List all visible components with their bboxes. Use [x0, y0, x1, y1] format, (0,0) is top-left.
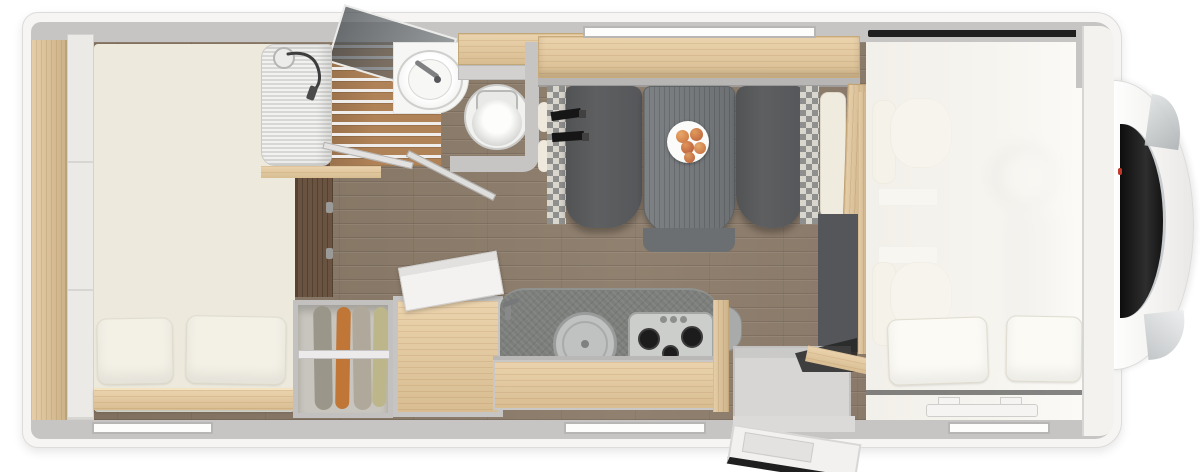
bed-pillow — [96, 317, 173, 384]
kitchen-cabinet-front — [493, 360, 727, 410]
rear-cabinet — [67, 34, 94, 420]
window-kitchen — [564, 422, 706, 434]
toilet-bowl — [472, 100, 522, 146]
window-top — [583, 26, 816, 38]
entry-step-bar — [926, 404, 1038, 417]
wardrobe-rail — [298, 350, 390, 359]
sink-cover-knob — [581, 340, 589, 348]
floorplan-canvas — [0, 0, 1200, 472]
table-base-shadow — [643, 228, 735, 252]
shower-sill — [261, 166, 381, 178]
dropdown-bed-pillow — [887, 316, 989, 385]
window-front-side — [948, 422, 1050, 434]
brand-badge — [1118, 168, 1122, 175]
window-bedroom — [92, 422, 213, 434]
partition-wall — [295, 163, 333, 297]
fruit — [684, 152, 695, 163]
seat-belt-buckle — [579, 110, 586, 118]
seat-belt-buckle — [582, 133, 589, 141]
fruit — [690, 128, 703, 141]
bench-right-cushion — [820, 92, 846, 218]
shower-head-icon — [268, 44, 338, 114]
tap-base — [434, 76, 441, 83]
cab-step-console — [818, 214, 862, 352]
hob-knob — [680, 316, 687, 323]
bathroom-shelf — [458, 65, 528, 80]
bed-foot-rail — [94, 388, 295, 410]
washbasin-inner — [408, 59, 452, 100]
bathroom-wall — [525, 42, 539, 162]
rear-shelf — [31, 40, 67, 420]
cab-roof-edge — [868, 30, 1082, 37]
dropdown-bed-pillow — [1005, 315, 1082, 382]
bed-pillow — [185, 315, 286, 385]
bathroom-wall — [450, 156, 539, 172]
chrome-trim — [1145, 94, 1186, 150]
hob-burner — [638, 328, 660, 350]
fridge — [393, 296, 503, 417]
kitchen-side-panel — [713, 300, 729, 412]
chrome-trim — [1144, 310, 1189, 360]
bench-left-side-trim — [547, 86, 566, 224]
hob-knob — [660, 316, 667, 323]
overhead-locker — [538, 36, 860, 78]
bench-right-side-trim — [800, 86, 819, 224]
door-hinge — [326, 248, 333, 259]
door-hinge — [326, 202, 333, 213]
cab-wall-line — [866, 390, 1086, 395]
bulkhead-panel — [1082, 26, 1114, 436]
hob-burner — [681, 326, 703, 348]
hob-knob — [670, 316, 677, 323]
dinette-bench-right — [736, 86, 802, 228]
fruit — [694, 142, 706, 154]
